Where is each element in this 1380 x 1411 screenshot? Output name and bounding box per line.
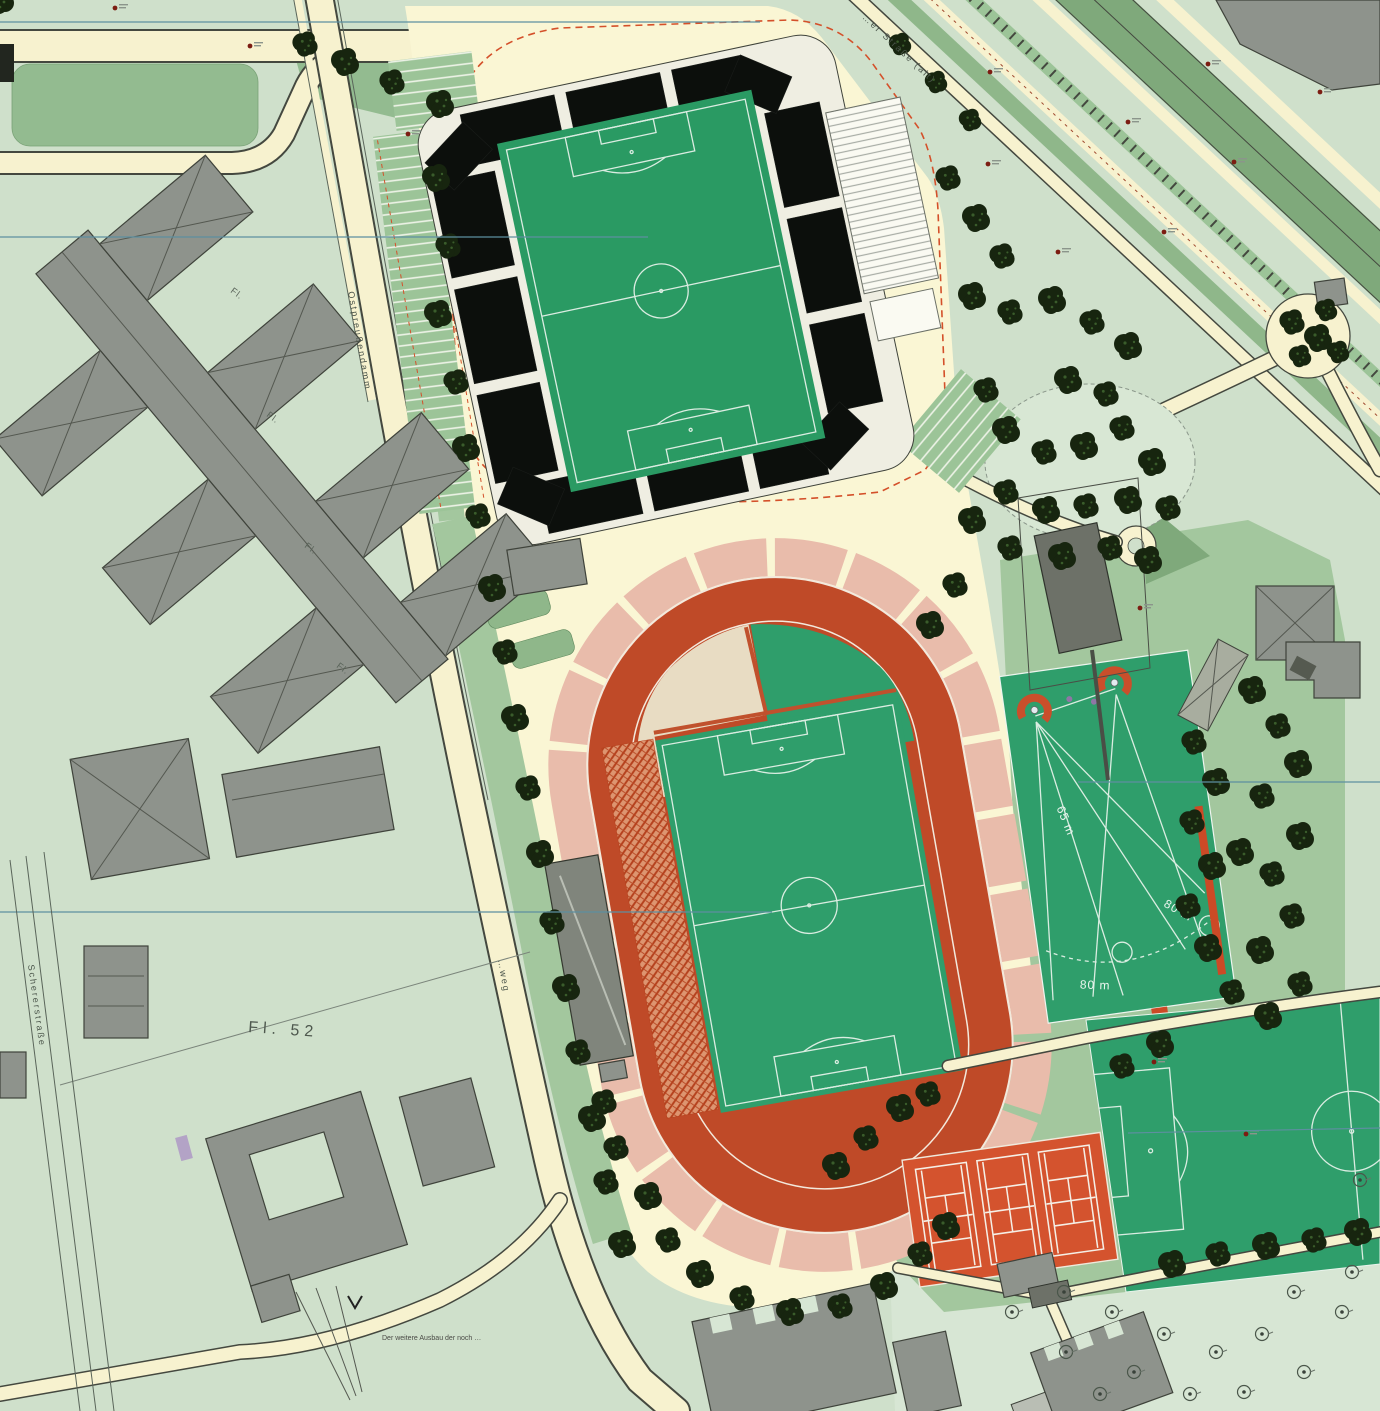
- lawn-block: [12, 64, 258, 146]
- site-plan-canvas: 65 m 80 m 80 m: [0, 0, 1380, 1411]
- distance-label-80m: 80 m: [1080, 977, 1111, 992]
- plan-note: Der weitere Ausbau der noch …: [382, 1335, 481, 1342]
- edge-building: [0, 44, 14, 82]
- site-plan-map: 65 m 80 m 80 m: [0, 0, 1380, 1411]
- training-pitch: [1086, 994, 1380, 1292]
